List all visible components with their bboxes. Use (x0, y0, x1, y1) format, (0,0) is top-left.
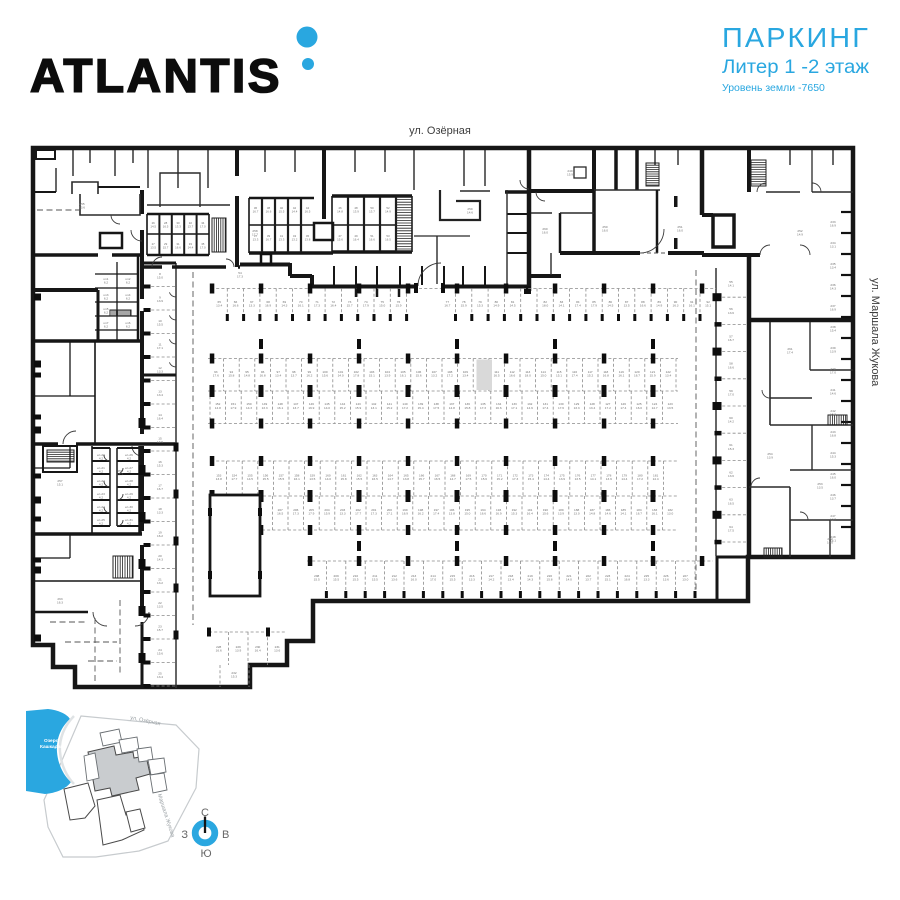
svg-text:16716.5: 16716.5 (434, 474, 440, 482)
svg-text:12313.5: 12313.5 (667, 402, 673, 410)
svg-text:кл-284.2: кл-284.2 (125, 479, 133, 487)
svg-text:22416.8: 22416.8 (624, 574, 630, 582)
svg-text:21714.2: 21714.2 (488, 574, 494, 582)
svg-text:14017.2: 14017.2 (402, 402, 408, 410)
svg-text:13214.9: 13214.9 (527, 402, 533, 410)
svg-text:6417.5: 6417.5 (728, 525, 734, 533)
svg-text:15313.8: 15313.8 (216, 474, 222, 482)
svg-text:15014.3: 15014.3 (246, 402, 252, 410)
svg-text:25914.6: 25914.6 (467, 207, 473, 215)
svg-text:ATLANTIS: ATLANTIS (30, 49, 282, 102)
svg-text:8816.6: 8816.6 (640, 300, 646, 308)
svg-text:7216.4: 7216.4 (330, 300, 336, 308)
svg-text:23215.3: 23215.3 (231, 671, 237, 679)
svg-text:5716.7: 5716.7 (728, 334, 734, 342)
svg-text:кл46.2: кл46.2 (126, 293, 131, 301)
svg-text:12016.7: 12016.7 (634, 370, 640, 378)
svg-text:7315.7: 7315.7 (347, 300, 353, 308)
svg-text:15913.5: 15913.5 (309, 474, 315, 482)
svg-text:11216.6: 11216.6 (509, 370, 515, 378)
svg-text:13117.4: 13117.4 (542, 402, 548, 410)
svg-text:4015.5: 4015.5 (279, 206, 285, 214)
svg-text:7915.3: 7915.3 (477, 300, 483, 308)
svg-text:22713.0: 22713.0 (682, 574, 688, 582)
svg-text:14514.0: 14514.0 (324, 402, 330, 410)
svg-text:16513.8: 16513.8 (403, 474, 409, 482)
svg-text:21515.5: 21515.5 (449, 574, 455, 582)
svg-text:9317.6: 9317.6 (213, 370, 219, 378)
svg-text:ул. Озёрная: ул. Озёрная (409, 125, 471, 137)
svg-text:14115.2: 14115.2 (386, 402, 392, 410)
svg-text:8914.9: 8914.9 (656, 300, 662, 308)
svg-text:10615.6: 10615.6 (416, 370, 422, 378)
svg-text:15514.5: 15514.5 (247, 474, 253, 482)
svg-text:22816.6: 22816.6 (216, 645, 222, 653)
svg-text:20415.9: 20415.9 (324, 508, 330, 516)
svg-text:18114.4: 18114.4 (653, 474, 659, 482)
svg-text:6616.6: 6616.6 (232, 300, 238, 308)
svg-text:19515.0: 19515.0 (464, 508, 470, 516)
svg-text:5214.9: 5214.9 (385, 206, 391, 214)
svg-text:11415.0: 11415.0 (540, 370, 546, 378)
svg-text:кл-314.2: кл-314.2 (125, 518, 133, 526)
svg-text:2415.6: 2415.6 (157, 648, 163, 656)
svg-text:4513.8: 4513.8 (305, 234, 311, 242)
svg-text:8314.1: 8314.1 (558, 300, 564, 308)
svg-text:23513.4: 23513.4 (830, 262, 836, 270)
svg-text:11916.1: 11916.1 (618, 370, 624, 378)
svg-text:3213.7: 3213.7 (188, 221, 194, 229)
svg-text:11715.2: 11715.2 (587, 370, 593, 378)
svg-text:4214.4: 4214.4 (292, 206, 298, 214)
svg-text:12213.4: 12213.4 (665, 370, 671, 378)
svg-text:9514.8: 9514.8 (244, 370, 250, 378)
svg-text:20017.1: 20017.1 (386, 508, 392, 516)
svg-text:ул. Озёрная: ул. Озёрная (130, 715, 161, 727)
svg-text:23413.1: 23413.1 (830, 241, 836, 249)
svg-text:4916.4: 4916.4 (353, 234, 359, 242)
svg-text:20617.3: 20617.3 (293, 508, 299, 516)
svg-text:7515.0: 7515.0 (379, 300, 385, 308)
svg-text:1615.3: 1615.3 (157, 460, 163, 468)
svg-text:2614.5: 2614.5 (150, 221, 156, 229)
svg-text:кл76.2: кл76.2 (104, 321, 109, 329)
svg-text:1916.2: 1916.2 (157, 531, 163, 539)
svg-text:25513.6: 25513.6 (79, 202, 85, 210)
svg-text:17813.9: 17813.9 (606, 474, 612, 482)
svg-text:20517.9: 20517.9 (308, 508, 314, 516)
svg-text:4715.6: 4715.6 (337, 234, 343, 242)
svg-text:9616.8: 9616.8 (260, 370, 266, 378)
svg-text:18017.2: 18017.2 (637, 474, 643, 482)
svg-text:6513.4: 6513.4 (216, 300, 222, 308)
svg-text:21813.4: 21813.4 (508, 574, 514, 582)
svg-text:6115.3: 6115.3 (728, 443, 734, 451)
svg-text:13915.4: 13915.4 (418, 402, 424, 410)
svg-text:3116.6: 3116.6 (175, 242, 181, 250)
svg-text:6014.2: 6014.2 (728, 416, 734, 424)
svg-text:кл26.2: кл26.2 (126, 277, 131, 285)
svg-text:кл-214.2: кл-214.2 (97, 466, 105, 474)
svg-text:16814.7: 16814.7 (450, 474, 456, 482)
svg-text:15117.9: 15117.9 (230, 402, 236, 410)
svg-text:1416.4: 1416.4 (157, 413, 163, 421)
svg-text:кл56.2: кл56.2 (104, 307, 109, 315)
svg-text:21316.0: 21316.0 (411, 574, 417, 582)
svg-text:22513.3: 22513.3 (643, 574, 649, 582)
svg-text:9116.1: 9116.1 (689, 300, 695, 308)
svg-text:24613.7: 24613.7 (830, 493, 836, 501)
svg-text:22315.1: 22315.1 (605, 574, 611, 582)
svg-text:26214.0: 26214.0 (827, 537, 833, 545)
svg-text:Уровень земли -7650: Уровень земли -7650 (722, 82, 825, 94)
svg-text:кл66.2: кл66.2 (126, 321, 131, 329)
svg-text:9713.4: 9713.4 (275, 370, 281, 378)
svg-text:25016.0: 25016.0 (602, 225, 608, 233)
svg-text:15715.5: 15715.5 (278, 474, 284, 482)
svg-text:5816.6: 5816.6 (728, 362, 734, 370)
svg-text:22213.7: 22213.7 (585, 574, 591, 582)
svg-text:С: С (201, 807, 209, 819)
svg-text:24415.3: 24415.3 (830, 451, 836, 459)
svg-text:10913.4: 10913.4 (462, 370, 468, 378)
svg-text:15214.8: 15214.8 (215, 402, 221, 410)
svg-text:3314.4: 3314.4 (188, 242, 194, 250)
svg-text:12617.4: 12617.4 (620, 402, 626, 410)
svg-text:24713.7: 24713.7 (830, 514, 836, 522)
svg-text:14315.9: 14315.9 (355, 402, 361, 410)
svg-text:5013.7: 5013.7 (369, 206, 375, 214)
svg-text:3013.3: 3013.3 (175, 221, 181, 229)
svg-text:24516.0: 24516.0 (830, 472, 836, 480)
svg-text:1015.5: 1015.5 (157, 319, 163, 327)
svg-text:5116.6: 5116.6 (369, 234, 375, 242)
svg-text:14816.1: 14816.1 (277, 402, 283, 410)
svg-text:17115.2: 17115.2 (497, 474, 503, 482)
svg-text:18213.0: 18213.0 (667, 508, 673, 516)
svg-text:25817.7: 25817.7 (252, 229, 258, 237)
svg-text:7716.7: 7716.7 (444, 300, 450, 308)
svg-text:16215.5: 16215.5 (356, 474, 362, 482)
svg-text:2713.5: 2713.5 (150, 242, 156, 250)
svg-text:20217.7: 20217.7 (355, 508, 361, 516)
svg-text:10217.8: 10217.8 (353, 370, 359, 378)
svg-text:19717.4: 19717.4 (433, 508, 439, 516)
svg-text:кл-294.2: кл-294.2 (125, 492, 133, 500)
svg-text:23113.6: 23113.6 (274, 645, 280, 653)
svg-text:3816.6: 3816.6 (266, 206, 272, 214)
svg-text:19015.6: 19015.6 (542, 508, 548, 516)
svg-text:8218.0: 8218.0 (542, 300, 548, 308)
svg-text:18614.6: 18614.6 (605, 508, 611, 516)
svg-text:18913.9: 18913.9 (558, 508, 564, 516)
svg-text:7815.9: 7815.9 (461, 300, 467, 308)
svg-text:1117.1: 1117.1 (157, 343, 163, 351)
svg-text:14415.2: 14415.2 (340, 402, 346, 410)
svg-text:11816.8: 11816.8 (603, 370, 609, 378)
svg-text:1813.3: 1813.3 (157, 507, 163, 515)
svg-text:ул. Маршала Жукова: ул. Маршала Жукова (153, 785, 176, 839)
svg-text:7117.3: 7117.3 (314, 300, 320, 308)
svg-text:4813.9: 4813.9 (353, 206, 359, 214)
svg-text:2315.7: 2315.7 (157, 625, 163, 633)
svg-text:18316.1: 18316.1 (652, 508, 658, 516)
svg-text:22114.0: 22114.0 (566, 574, 572, 582)
svg-text:11515.1: 11515.1 (556, 370, 562, 378)
svg-text:5514.1: 5514.1 (728, 280, 734, 288)
svg-text:2513.4: 2513.4 (157, 672, 163, 680)
svg-text:10817.2: 10817.2 (447, 370, 453, 378)
svg-text:кл-274.2: кл-274.2 (125, 466, 133, 474)
svg-text:21115.5: 21115.5 (372, 574, 378, 582)
svg-text:6914.3: 6914.3 (281, 300, 287, 308)
svg-text:16917.5: 16917.5 (465, 474, 471, 482)
svg-text:3417.0: 3417.0 (200, 221, 206, 229)
svg-text:24017.0: 24017.0 (830, 367, 836, 375)
svg-text:9916.2: 9916.2 (306, 370, 312, 378)
svg-text:8713.5: 8713.5 (624, 300, 630, 308)
svg-text:11116.5: 11116.5 (494, 370, 500, 378)
svg-text:1313.4: 1313.4 (157, 390, 163, 398)
svg-text:20313.3: 20313.3 (340, 508, 346, 516)
svg-text:16414.7: 16414.7 (387, 474, 393, 482)
svg-text:23016.4: 23016.4 (255, 645, 261, 653)
svg-text:24114.6: 24114.6 (830, 388, 836, 396)
svg-text:кл36.2: кл36.2 (104, 293, 109, 301)
svg-text:24316.8: 24316.8 (830, 430, 836, 438)
svg-text:18813.0: 18813.0 (574, 508, 580, 516)
svg-text:17015.6: 17015.6 (481, 474, 487, 482)
svg-text:15615.5: 15615.5 (263, 474, 269, 482)
svg-text:20716.5: 20716.5 (277, 508, 283, 516)
svg-text:25116.0: 25116.0 (677, 225, 683, 233)
svg-text:16014.0: 16014.0 (325, 474, 331, 482)
svg-text:15816.1: 15816.1 (294, 474, 300, 482)
svg-text:9813.7: 9813.7 (291, 370, 297, 378)
svg-text:10315.1: 10315.1 (369, 370, 375, 378)
svg-text:13017.6: 13017.6 (558, 402, 564, 410)
svg-text:15417.7: 15417.7 (231, 474, 237, 482)
svg-text:7615.9: 7615.9 (395, 300, 401, 308)
svg-text:25313.5: 25313.5 (817, 482, 823, 490)
svg-text:17714.1: 17714.1 (590, 474, 596, 482)
svg-text:12717.2: 12717.2 (605, 402, 611, 410)
svg-text:7417.9: 7417.9 (363, 300, 369, 308)
svg-text:20815.5: 20815.5 (314, 574, 320, 582)
svg-text:кл-254.2: кл-254.2 (97, 518, 105, 526)
svg-text:ул. Маршала Жукова: ул. Маршала Жукова (869, 278, 881, 387)
svg-text:1716.7: 1716.7 (157, 484, 163, 492)
svg-text:3517.0: 3517.0 (200, 242, 206, 250)
svg-text:17513.9: 17513.9 (559, 474, 565, 482)
svg-text:23316.9: 23316.9 (830, 220, 836, 228)
svg-text:10516.1: 10516.1 (400, 370, 406, 378)
svg-text:5316.5: 5316.5 (385, 234, 391, 242)
svg-text:19916.9: 19916.9 (402, 508, 408, 516)
svg-text:19416.6: 19416.6 (480, 508, 486, 516)
svg-text:24915.9: 24915.9 (567, 169, 573, 177)
svg-text:10114.0: 10114.0 (338, 370, 344, 378)
svg-text:7016.1: 7016.1 (298, 300, 304, 308)
svg-text:8614.5: 8614.5 (607, 300, 613, 308)
svg-text:8014.9: 8014.9 (493, 300, 499, 308)
svg-text:12813.4: 12813.4 (589, 402, 595, 410)
svg-text:25413.9: 25413.9 (767, 452, 773, 460)
svg-text:2213.5: 2213.5 (157, 601, 163, 609)
svg-text:25214.9: 25214.9 (797, 229, 803, 237)
svg-text:5417.3: 5417.3 (237, 271, 243, 279)
svg-text:14913.3: 14913.3 (262, 402, 268, 410)
svg-text:18416.7: 18416.7 (636, 508, 642, 516)
svg-text:17613.5: 17613.5 (575, 474, 581, 482)
svg-text:14616.9: 14616.9 (308, 402, 314, 410)
svg-text:10713.2: 10713.2 (431, 370, 437, 378)
svg-text:13317.1: 13317.1 (511, 402, 517, 410)
svg-text:Литер 1 -2 этаж: Литер 1 -2 этаж (722, 56, 869, 78)
svg-text:4614.8: 4614.8 (337, 206, 343, 214)
svg-text:21213.6: 21213.6 (391, 574, 397, 582)
svg-text:14713.7: 14713.7 (293, 402, 299, 410)
svg-text:26016.0: 26016.0 (542, 227, 548, 235)
svg-text:6713.3: 6713.3 (249, 300, 255, 308)
svg-text:25617.7: 25617.7 (117, 469, 123, 477)
svg-text:9415.8: 9415.8 (228, 370, 234, 378)
svg-text:26316.3: 26316.3 (57, 597, 63, 605)
svg-text:кл16.2: кл16.2 (104, 277, 109, 285)
svg-text:5917.0: 5917.0 (728, 389, 734, 397)
svg-text:9016.3: 9016.3 (672, 300, 678, 308)
svg-text:11318.0: 11318.0 (525, 370, 531, 378)
svg-text:9215.1: 9215.1 (705, 300, 711, 308)
svg-text:23815.4: 23815.4 (830, 325, 836, 333)
svg-text:16316.5: 16316.5 (372, 474, 378, 482)
svg-text:23913.9: 23913.9 (830, 346, 836, 354)
svg-text:18714.8: 18714.8 (589, 508, 595, 516)
svg-text:18514.1: 18514.1 (620, 508, 626, 516)
svg-text:6316.5: 6316.5 (728, 498, 734, 506)
svg-text:12913.3: 12913.3 (574, 402, 580, 410)
svg-text:19316.9: 19316.9 (496, 508, 502, 516)
svg-text:19816.2: 19816.2 (418, 508, 424, 516)
svg-text:8114.5: 8114.5 (510, 300, 516, 308)
svg-text:13714.8: 13714.8 (449, 402, 455, 410)
svg-text:19215.3: 19215.3 (511, 508, 517, 516)
svg-text:4313.2: 4313.2 (292, 234, 298, 242)
svg-text:8517.9: 8517.9 (591, 300, 597, 308)
svg-text:13615.8: 13615.8 (464, 402, 470, 410)
svg-text:17217.3: 17217.3 (512, 474, 518, 482)
svg-text:3916.7: 3916.7 (266, 234, 272, 242)
svg-text:11617.4: 11617.4 (572, 370, 578, 378)
svg-text:19116.4: 19116.4 (527, 508, 533, 516)
svg-text:16115.8: 16115.8 (341, 474, 347, 482)
svg-text:12414.7: 12414.7 (652, 402, 658, 410)
svg-text:10015.6: 10015.6 (322, 370, 328, 378)
svg-text:22613.6: 22613.6 (663, 574, 669, 582)
svg-text:20117.3: 20117.3 (371, 508, 377, 516)
svg-text:16615.7: 16615.7 (419, 474, 425, 482)
svg-text:22913.9: 22913.9 (235, 645, 241, 653)
svg-text:4113.3: 4113.3 (279, 234, 285, 242)
svg-text:14213.1: 14213.1 (371, 402, 377, 410)
svg-text:2816.5: 2816.5 (163, 221, 169, 229)
svg-text:Ю: Ю (200, 848, 211, 860)
svg-text:12115.9: 12115.9 (650, 370, 656, 378)
svg-text:23716.9: 23716.9 (830, 304, 836, 312)
svg-text:З: З (181, 829, 188, 841)
svg-text:13817.5: 13817.5 (433, 402, 439, 410)
svg-text:ПАРКИНГ: ПАРКИНГ (722, 22, 870, 53)
svg-text:23614.3: 23614.3 (830, 283, 836, 291)
svg-text:13416.6: 13416.6 (496, 402, 502, 410)
svg-text:21613.3: 21613.3 (469, 574, 475, 582)
svg-text:17914.4: 17914.4 (621, 474, 627, 482)
svg-text:20915.5: 20915.5 (333, 574, 339, 582)
svg-text:8417.4: 8417.4 (575, 300, 581, 308)
svg-text:В: В (222, 829, 229, 841)
svg-text:17414.4: 17414.4 (543, 474, 549, 482)
svg-text:кл-234.2: кл-234.2 (97, 492, 105, 500)
svg-text:24215.2: 24215.2 (830, 409, 836, 417)
svg-text:22015.8: 22015.8 (546, 574, 552, 582)
svg-text:6213.6: 6213.6 (728, 470, 734, 478)
svg-text:1213.3: 1213.3 (157, 366, 163, 374)
svg-text:6816.9: 6816.9 (265, 300, 271, 308)
svg-text:4416.5: 4416.5 (305, 206, 311, 214)
svg-text:кл-304.2: кл-304.2 (125, 505, 133, 513)
svg-text:12516.0: 12516.0 (636, 402, 642, 410)
svg-text:21015.5: 21015.5 (352, 574, 358, 582)
svg-text:25715.1: 25715.1 (57, 479, 63, 487)
svg-text:2014.3: 2014.3 (157, 554, 163, 562)
svg-text:17315.4: 17315.4 (528, 474, 534, 482)
svg-text:26117.4: 26117.4 (787, 347, 793, 355)
svg-text:2113.2: 2113.2 (157, 578, 163, 586)
svg-text:13517.3: 13517.3 (480, 402, 486, 410)
svg-text:кл-264.2: кл-264.2 (125, 453, 133, 461)
svg-text:3616.7: 3616.7 (253, 206, 259, 214)
svg-text:815.0: 815.0 (157, 272, 163, 280)
svg-text:2915.7: 2915.7 (163, 242, 169, 250)
svg-text:19613.8: 19613.8 (449, 508, 455, 516)
svg-text:10413.9: 10413.9 (384, 370, 390, 378)
svg-text:21417.0: 21417.0 (430, 574, 436, 582)
svg-text:21914.3: 21914.3 (527, 574, 533, 582)
svg-text:1513.6: 1513.6 (157, 437, 163, 445)
svg-text:913.9: 913.9 (157, 296, 163, 304)
svg-text:5613.6: 5613.6 (728, 307, 734, 315)
